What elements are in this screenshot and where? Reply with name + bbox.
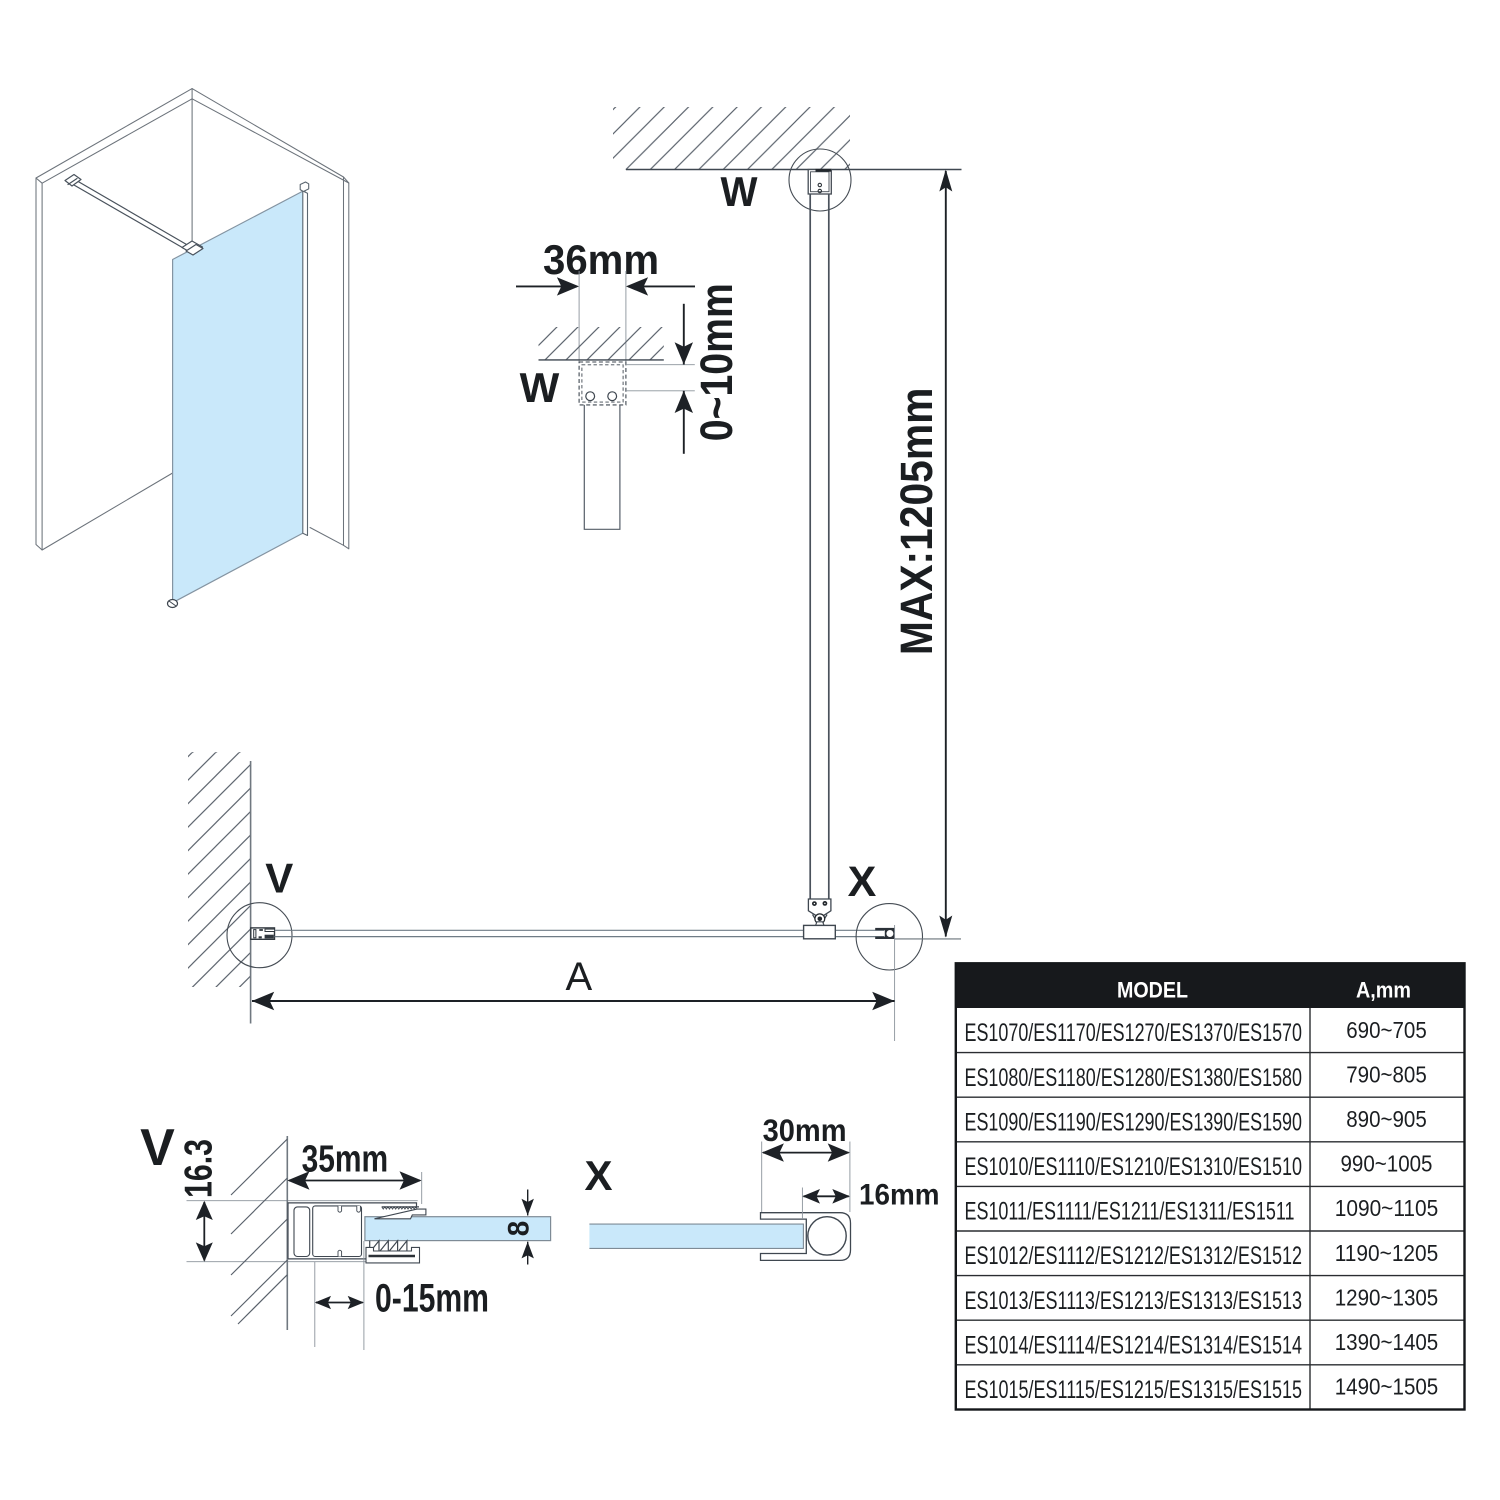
svg-text:690~705: 690~705 (1346, 1017, 1427, 1043)
svg-text:X: X (584, 1152, 612, 1199)
svg-text:990~1005: 990~1005 (1341, 1151, 1433, 1177)
svg-text:W: W (721, 168, 758, 215)
svg-text:ES1080/ES1180/ES1280/ES1380/ES: ES1080/ES1180/ES1280/ES1380/ES1580 (965, 1064, 1303, 1092)
svg-text:1490~1505: 1490~1505 (1335, 1374, 1439, 1400)
svg-text:ES1011/ES1111/ES1211/ES1311/ES: ES1011/ES1111/ES1211/ES1311/ES1511 (965, 1198, 1295, 1226)
svg-text:X: X (848, 858, 877, 906)
svg-text:V: V (265, 855, 293, 902)
svg-text:0~10mm: 0~10mm (691, 283, 742, 441)
svg-text:1190~1205: 1190~1205 (1335, 1240, 1439, 1266)
svg-text:ES1012/ES1112/ES1212/ES1312/ES: ES1012/ES1112/ES1212/ES1312/ES1512 (965, 1242, 1303, 1270)
svg-text:A: A (566, 955, 593, 999)
svg-text:890~905: 890~905 (1346, 1106, 1427, 1132)
svg-text:V: V (140, 1119, 175, 1177)
svg-text:30mm: 30mm (763, 1112, 847, 1148)
svg-text:ES1070/ES1170/ES1270/ES1370/ES: ES1070/ES1170/ES1270/ES1370/ES1570 (965, 1019, 1303, 1047)
svg-text:35mm: 35mm (302, 1139, 389, 1181)
svg-text:ES1015/ES1115/ES1215/ES1315/ES: ES1015/ES1115/ES1215/ES1315/ES1515 (965, 1376, 1303, 1404)
svg-text:MODEL: MODEL (1117, 978, 1188, 1003)
svg-text:1090~1105: 1090~1105 (1335, 1195, 1439, 1221)
svg-text:790~805: 790~805 (1346, 1061, 1427, 1087)
svg-text:8: 8 (503, 1221, 536, 1237)
svg-text:W: W (520, 364, 560, 411)
svg-text:MAX:1205mm: MAX:1205mm (891, 388, 942, 656)
svg-text:ES1010/ES1110/ES1210/ES1310/ES: ES1010/ES1110/ES1210/ES1310/ES1510 (965, 1153, 1303, 1181)
svg-text:ES1090/ES1190/ES1290/ES1390/ES: ES1090/ES1190/ES1290/ES1390/ES1590 (965, 1108, 1303, 1136)
svg-text:ES1013/ES1113/ES1213/ES1313/ES: ES1013/ES1113/ES1213/ES1313/ES1513 (965, 1287, 1303, 1315)
svg-text:36mm: 36mm (543, 236, 659, 283)
svg-text:A,mm: A,mm (1356, 978, 1411, 1003)
svg-text:16.3: 16.3 (178, 1139, 221, 1198)
svg-text:1290~1305: 1290~1305 (1335, 1284, 1439, 1310)
svg-text:0-15mm: 0-15mm (375, 1277, 489, 1321)
svg-text:ES1014/ES1114/ES1214/ES1314/ES: ES1014/ES1114/ES1214/ES1314/ES1514 (965, 1331, 1303, 1359)
svg-text:1390~1405: 1390~1405 (1335, 1329, 1439, 1355)
svg-text:16mm: 16mm (859, 1178, 940, 1211)
